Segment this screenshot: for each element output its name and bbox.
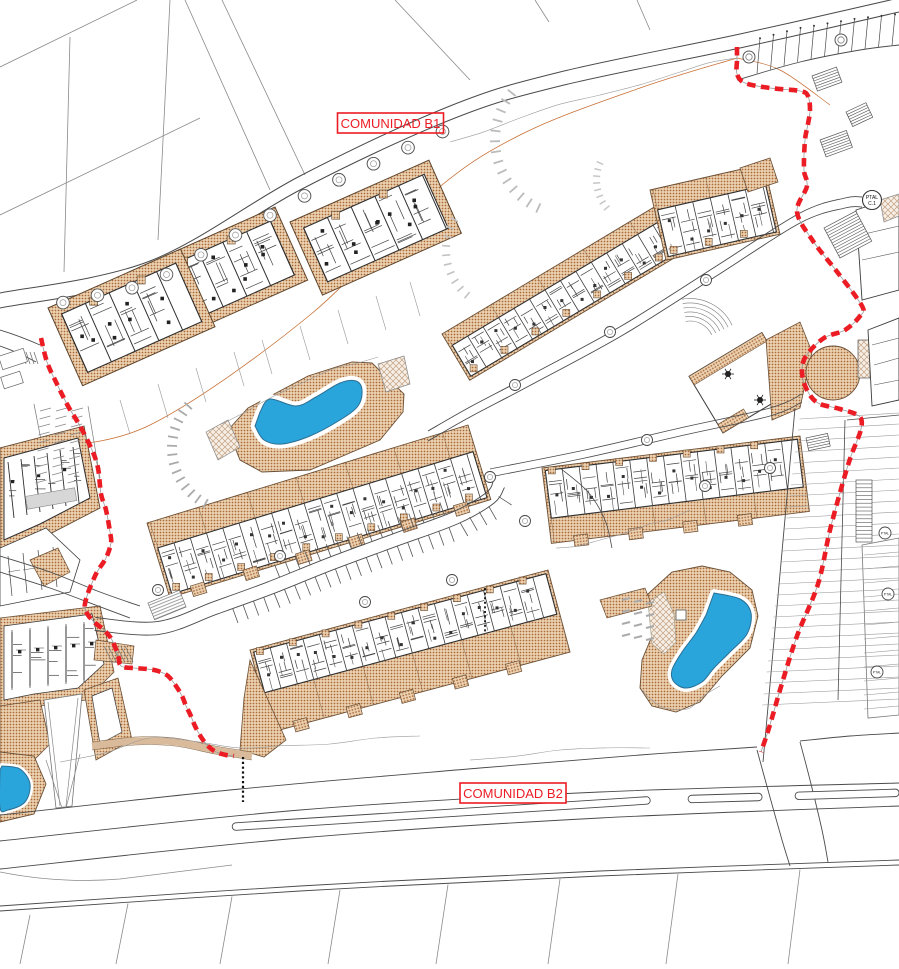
- svg-text:COMUNIDAD B2: COMUNIDAD B2: [463, 786, 563, 801]
- svg-text:PTAL: PTAL: [881, 532, 890, 536]
- svg-text:PTAL: PTAL: [884, 593, 893, 597]
- svg-text:PTAL: PTAL: [873, 671, 882, 675]
- svg-text:COMUNIDAD B1: COMUNIDAD B1: [341, 116, 441, 131]
- svg-text:C.1: C.1: [868, 201, 876, 207]
